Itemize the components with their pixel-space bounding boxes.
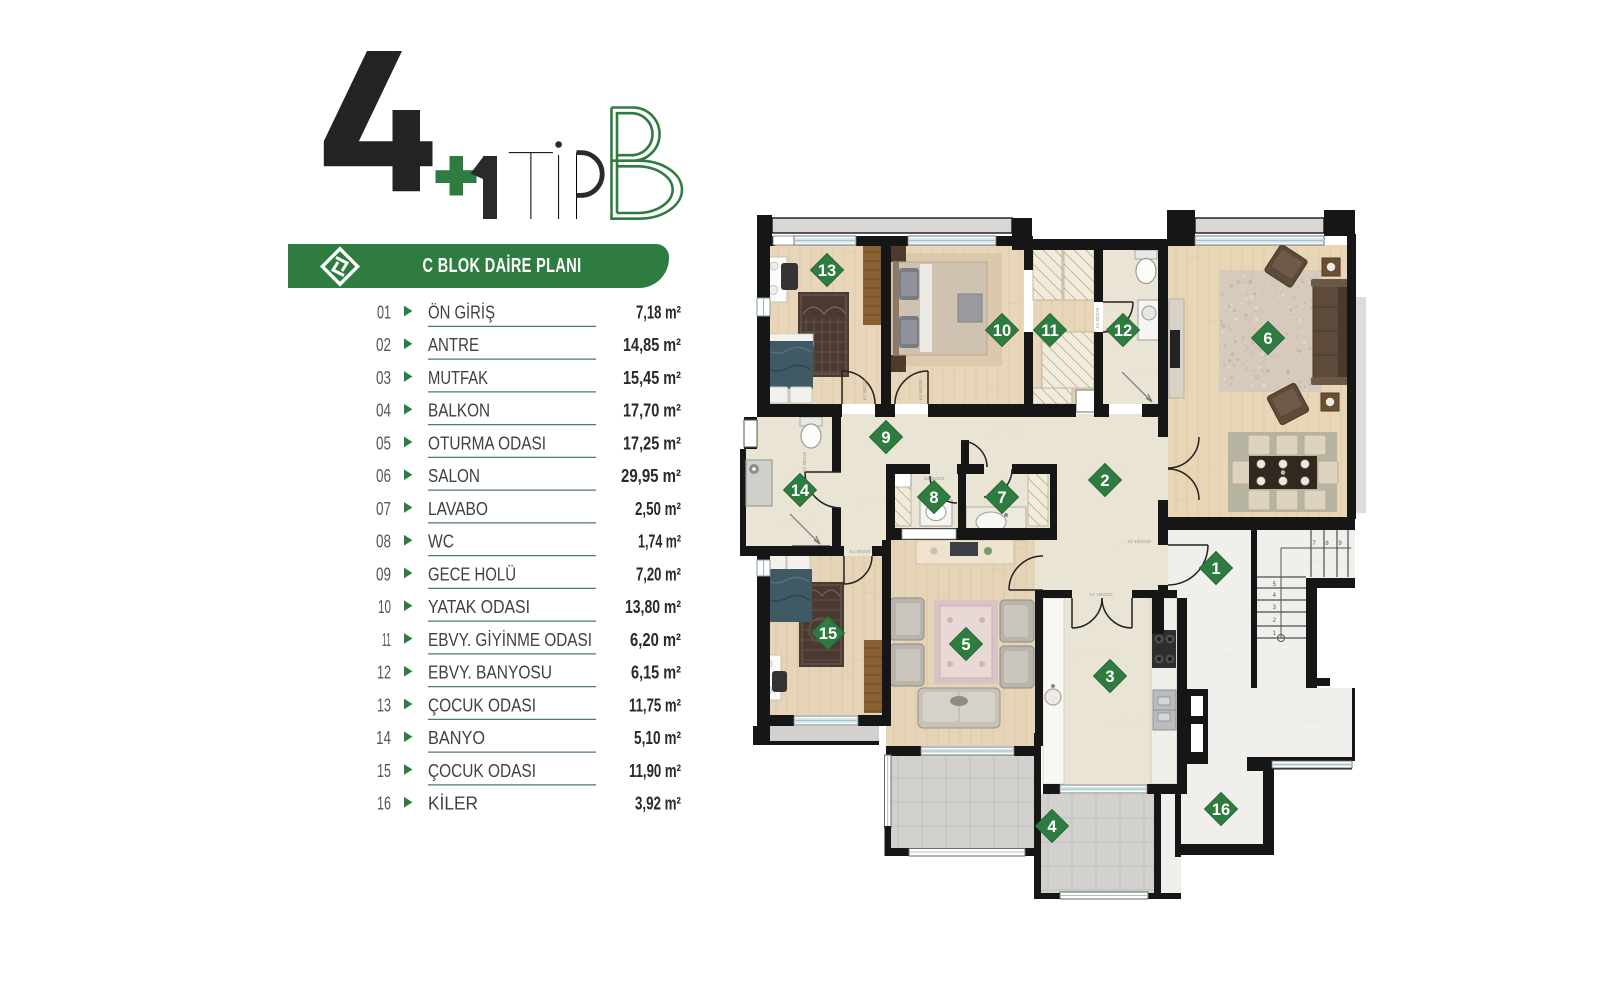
svg-text:7: 7 — [997, 489, 1006, 507]
svg-text:12: 12 — [377, 663, 391, 683]
svg-text:YATAK ODASI: YATAK ODASI — [428, 597, 530, 617]
svg-text:07: 07 — [376, 499, 391, 519]
svg-text:K2 80/220: K2 80/220 — [1095, 307, 1100, 328]
svg-text:2: 2 — [1100, 472, 1109, 490]
svg-text:12: 12 — [1114, 322, 1132, 340]
svg-text:5: 5 — [961, 636, 970, 654]
svg-text:10: 10 — [993, 322, 1011, 340]
svg-text:16: 16 — [377, 794, 391, 814]
svg-text:14: 14 — [791, 482, 810, 500]
svg-text:11: 11 — [382, 630, 391, 650]
svg-text:09: 09 — [376, 564, 391, 584]
svg-text:15: 15 — [819, 625, 837, 643]
svg-text:16: 16 — [1212, 801, 1230, 819]
svg-text:1: 1 — [1211, 560, 1220, 578]
svg-text:9: 9 — [881, 429, 890, 447]
svg-text:13,80 m²: 13,80 m² — [625, 597, 681, 617]
svg-text:KİLER: KİLER — [428, 794, 478, 814]
svg-text:13: 13 — [818, 262, 836, 280]
svg-text:04: 04 — [376, 401, 391, 421]
svg-text:15: 15 — [377, 761, 391, 781]
svg-text:OTURMA ODASI: OTURMA ODASI — [428, 433, 546, 453]
svg-text:17,25 m²: 17,25 m² — [623, 433, 681, 453]
svg-text:MUTFAK: MUTFAK — [428, 368, 488, 388]
svg-text:03: 03 — [376, 368, 391, 388]
svg-text:14,85 m²: 14,85 m² — [623, 335, 681, 355]
svg-text:C BLOK DAİRE PLANI: C BLOK DAİRE PLANI — [423, 254, 582, 277]
svg-text:08: 08 — [376, 532, 391, 552]
svg-text:1,74 m²: 1,74 m² — [638, 532, 681, 552]
svg-text:02: 02 — [376, 335, 391, 355]
svg-text:01: 01 — [377, 302, 391, 322]
svg-text:11: 11 — [1041, 322, 1058, 340]
svg-text:K2 100/220: K2 100/220 — [1127, 539, 1151, 544]
svg-text:ÖN GİRİŞ: ÖN GİRİŞ — [428, 302, 495, 322]
svg-text:6,15 m²: 6,15 m² — [631, 663, 681, 683]
svg-text:K1 90/220: K1 90/220 — [918, 379, 923, 400]
svg-text:29,95 m²: 29,95 m² — [621, 466, 681, 486]
svg-text:6,20 m²: 6,20 m² — [630, 630, 681, 650]
svg-text:15,45 m²: 15,45 m² — [623, 368, 681, 388]
svg-text:7,18 m²: 7,18 m² — [636, 302, 681, 322]
svg-text:10: 10 — [378, 597, 391, 617]
svg-text:K1 160/220: K1 160/220 — [1089, 592, 1113, 597]
svg-text:05: 05 — [376, 433, 391, 453]
svg-text:11,90 m²: 11,90 m² — [629, 761, 681, 781]
svg-text:K2 80/220: K2 80/220 — [802, 451, 807, 472]
svg-text:BANYO: BANYO — [428, 728, 485, 748]
svg-text:EBVY. BANYOSU: EBVY. BANYOSU — [428, 663, 552, 683]
svg-text:6: 6 — [1263, 330, 1272, 348]
svg-text:ÇOCUK ODASI: ÇOCUK ODASI — [428, 761, 536, 781]
svg-text:2,50 m²: 2,50 m² — [635, 499, 681, 519]
svg-text:14: 14 — [376, 728, 391, 748]
svg-text:7,20 m²: 7,20 m² — [636, 564, 681, 584]
svg-text:ÇOCUK ODASI: ÇOCUK ODASI — [428, 695, 536, 715]
svg-text:BALKON: BALKON — [428, 401, 490, 421]
svg-text:17,70 m²: 17,70 m² — [623, 401, 681, 421]
svg-text:WC: WC — [428, 532, 454, 552]
svg-text:K1 90/220: K1 90/220 — [850, 549, 871, 554]
svg-text:SALON: SALON — [428, 466, 480, 486]
svg-text:06: 06 — [376, 466, 391, 486]
svg-text:3,92 m²: 3,92 m² — [635, 794, 681, 814]
svg-text:ANTRE: ANTRE — [428, 335, 479, 355]
svg-text:3: 3 — [1105, 668, 1114, 686]
svg-text:GECE HOLÜ: GECE HOLÜ — [428, 564, 516, 584]
svg-text:EBVY. GİYİNME ODASI: EBVY. GİYİNME ODASI — [428, 630, 592, 650]
svg-text:K1 90/220: K1 90/220 — [862, 379, 867, 400]
svg-text:5,10 m²: 5,10 m² — [634, 728, 681, 748]
svg-text:4: 4 — [1047, 818, 1057, 836]
svg-text:LAVABO: LAVABO — [428, 499, 488, 519]
svg-text:13: 13 — [377, 695, 391, 715]
svg-text:8: 8 — [929, 489, 938, 507]
svg-text:11,75 m²: 11,75 m² — [629, 695, 681, 715]
